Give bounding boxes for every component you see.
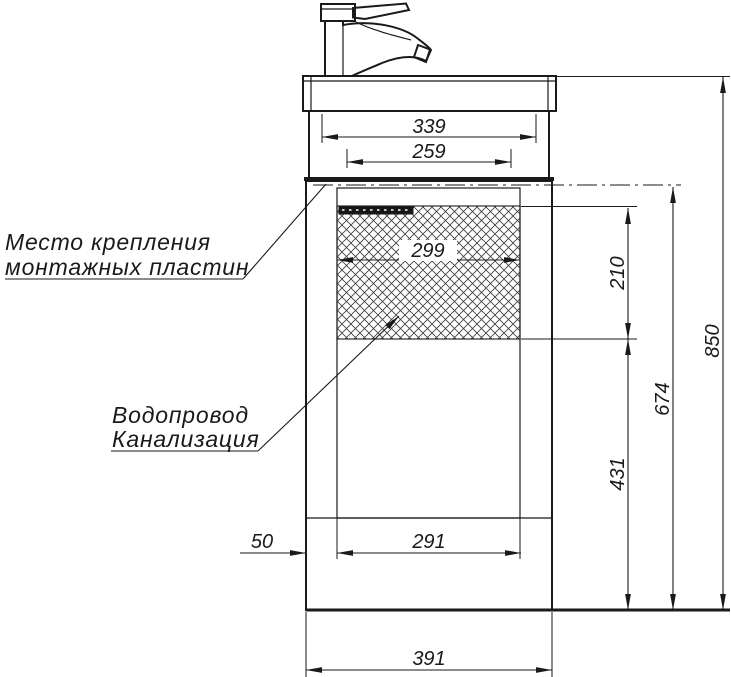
mounting-annotation-line1: Место крепления	[5, 229, 211, 255]
dim-label-cabinet-width: 391	[412, 648, 445, 670]
faucet-nozzle	[414, 45, 430, 62]
extension-lines	[306, 77, 730, 677]
dim-label-plate-zone-height: 210	[607, 256, 629, 290]
dim-label-basin-width: 339	[412, 116, 445, 138]
plumbing-leader	[258, 316, 399, 451]
dim-label-axis-to-floor-height: 674	[652, 382, 674, 415]
faucet	[321, 4, 431, 77]
dim-label-service-zone-width: 291	[411, 531, 445, 553]
dim-label-lower-zone-height: 431	[607, 457, 629, 490]
plumbing-annotation-line2: Канализация	[112, 426, 260, 452]
plumbing-annotation-line1: Водопровод	[112, 402, 249, 428]
dimension-lines	[240, 77, 723, 670]
faucet-body-spout	[325, 21, 431, 76]
mounting-annotation-line2: монтажных пластин	[5, 254, 249, 280]
dim-label-total-height: 850	[702, 324, 724, 357]
plumbing-zone-hatch	[337, 206, 520, 339]
vanity-drawing: 339 259 299 50 291 391 210 431 674 850 М…	[0, 0, 731, 677]
technical-drawing-canvas: 339 259 299 50 291 391 210 431 674 850 М…	[0, 0, 731, 677]
faucet-handle-knob	[321, 4, 355, 21]
labels: 339 259 299 50 291 391 210 431 674 850 М…	[5, 116, 724, 670]
dim-label-side-offset: 50	[251, 531, 273, 553]
faucet-lever	[353, 4, 409, 20]
dim-label-basin-inner-width: 259	[411, 141, 445, 163]
cabinet	[306, 181, 681, 610]
mounting-leader	[243, 184, 326, 279]
dim-label-service-opening-width: 299	[410, 240, 444, 262]
